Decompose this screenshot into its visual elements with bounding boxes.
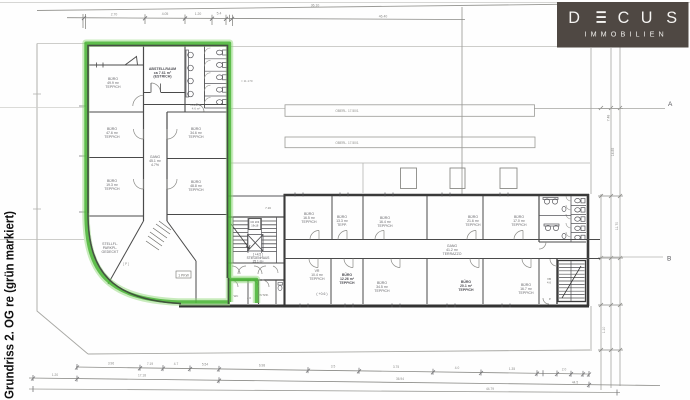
svg-text:2.70: 2.70 [111,13,118,17]
svg-text:TEPPICH: TEPPICH [511,223,527,227]
svg-text:TEPPICH: TEPPICH [377,224,393,228]
svg-text:36.94: 36.94 [396,377,404,381]
svg-text:3.96: 3.96 [108,362,114,366]
svg-text:TEPPICH: TEPPICH [188,135,204,139]
svg-text:19x18: 19x18 [251,224,259,228]
svg-text:11.70: 11.70 [615,222,619,230]
svg-text:3.75: 3.75 [393,365,399,369]
svg-text:TEPPICH: TEPPICH [104,135,120,139]
svg-text:46.40: 46.40 [379,15,388,19]
svg-text:1.10: 1.10 [602,327,606,334]
svg-text:C: C [618,9,630,27]
svg-text:( +0.6 ): ( +0.6 ) [316,292,327,296]
svg-text:2.0: 2.0 [562,368,567,372]
svg-text:TEPPICH: TEPPICH [458,288,474,292]
svg-text:A: A [668,101,673,108]
svg-text:1.20: 1.20 [52,373,58,377]
svg-text:TEPPICH: TEPPICH [309,277,325,281]
svg-text:TERRAZZO: TERRAZZO [443,252,462,256]
svg-text:4.6: 4.6 [247,296,251,300]
svg-text:U: U [641,9,653,27]
svg-text:CD 203: CD 203 [250,220,259,224]
svg-text:GEDECKT: GEDECKT [102,250,120,254]
svg-text:6.98: 6.98 [259,363,265,367]
svg-text:36.10: 36.10 [311,4,320,8]
svg-text:TEPPICH: TEPPICH [301,220,317,224]
svg-text:7.19: 7.19 [147,362,153,366]
svg-text:5.54: 5.54 [202,363,208,367]
svg-text:TEPPICH: TEPPICH [465,223,481,227]
svg-text:Grundriss 2. OG re (grün marki: Grundriss 2. OG re (grün markiert) [3,211,17,399]
svg-text:14.85: 14.85 [611,148,615,157]
svg-text:OBERL. 17.50/1: OBERL. 17.50/1 [335,141,358,145]
svg-text:4.7: 4.7 [174,362,179,366]
svg-text:5.4: 5.4 [217,12,222,16]
svg-text:17.18: 17.18 [138,374,146,378]
svg-text:P.: P. [549,297,552,301]
svg-text:1 PKW: 1 PKW [178,274,189,278]
svg-text:TEPP.: TEPP. [337,223,347,227]
svg-text:4.05: 4.05 [162,12,169,16]
svg-text:1.35: 1.35 [509,367,515,371]
svg-text:D: D [568,9,580,27]
svg-text:WC: WC [234,294,239,298]
svg-text:IMMOBILIEN: IMMOBILIEN [585,30,668,39]
svg-text:[ P ]: [ P ] [123,262,129,266]
svg-text:(ESTRICH): (ESTRICH) [153,75,172,79]
svg-text:1.20: 1.20 [195,12,202,16]
svg-text:3.5: 3.5 [331,364,336,368]
svg-text:TEPPICH: TEPPICH [374,289,390,293]
svg-text:44.79: 44.79 [486,387,494,391]
svg-text:4.7%: 4.7% [151,163,159,167]
svg-text:TEPPICH: TEPPICH [188,188,204,192]
svg-text:S: S [666,9,677,27]
svg-text:TEPPICH: TEPPICH [104,187,120,191]
svg-text:44.5: 44.5 [572,381,578,385]
svg-text:TEPPICH: TEPPICH [518,291,534,295]
svg-text:B: B [667,256,671,263]
svg-text:TEPPICH: TEPPICH [339,281,355,285]
svg-text:4.6: 4.6 [547,281,552,285]
svg-text:4.0: 4.0 [455,366,460,370]
svg-text:TEPPICH: TEPPICH [105,85,121,89]
svg-text:7.48: 7.48 [607,115,611,122]
svg-text:= 11.170: = 11.170 [241,79,253,83]
svg-text:7.16: 7.16 [265,206,271,210]
svg-text:OBERL. 17.50/1: OBERL. 17.50/1 [335,109,358,113]
svg-text:4.6 m²: 4.6 m² [192,107,201,111]
